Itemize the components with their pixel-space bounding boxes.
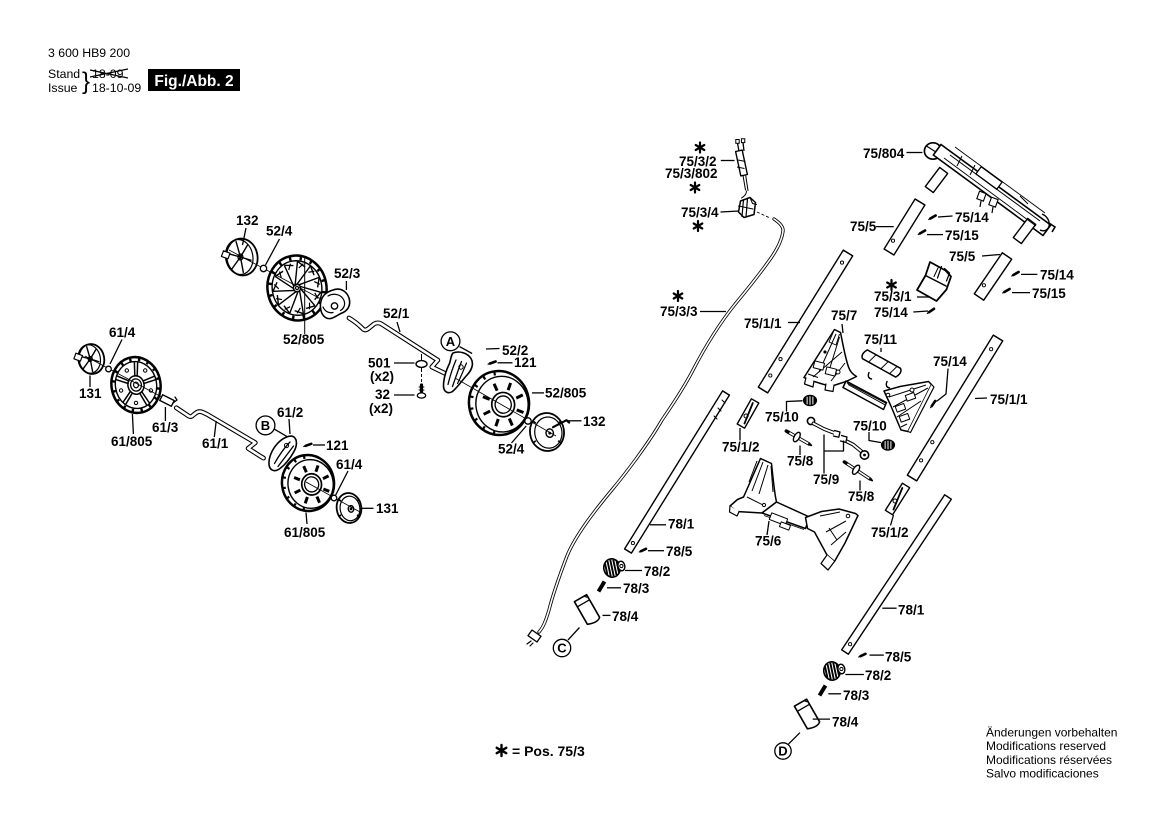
- svg-text:3 600 HB9 200: 3 600 HB9 200: [48, 46, 130, 60]
- svg-text:75/3/802: 75/3/802: [665, 166, 718, 181]
- svg-text:Änderungen vorbehalten: Änderungen vorbehalten: [986, 726, 1117, 740]
- svg-text:75/9: 75/9: [813, 472, 839, 487]
- svg-text:75/10: 75/10: [765, 410, 799, 425]
- svg-text:132: 132: [236, 213, 259, 228]
- svg-text:61/3: 61/3: [152, 420, 179, 435]
- svg-text:75/15: 75/15: [1032, 286, 1066, 301]
- svg-text:75/11: 75/11: [864, 332, 898, 347]
- svg-text:75/14: 75/14: [955, 210, 989, 225]
- svg-text:75/1/2: 75/1/2: [722, 440, 760, 455]
- svg-text:78/5: 78/5: [885, 650, 912, 665]
- svg-text:B: B: [261, 418, 270, 433]
- svg-text:(x2): (x2): [369, 401, 393, 416]
- svg-text:52/4: 52/4: [498, 442, 525, 457]
- svg-text:121: 121: [326, 438, 349, 453]
- svg-text:Modifications réservées: Modifications réservées: [986, 753, 1112, 767]
- svg-text:75/7: 75/7: [831, 308, 857, 323]
- svg-text:52/4: 52/4: [266, 224, 293, 239]
- svg-text:61/1: 61/1: [202, 436, 229, 451]
- svg-text:Salvo modificaciones: Salvo modificaciones: [986, 767, 1099, 781]
- svg-text:78/3: 78/3: [623, 581, 650, 596]
- svg-text:61/805: 61/805: [111, 434, 153, 449]
- svg-text:131: 131: [79, 386, 102, 401]
- svg-text:Modifications reserved: Modifications reserved: [986, 739, 1106, 753]
- svg-text:75/5: 75/5: [949, 249, 976, 264]
- svg-text:75/1/2: 75/1/2: [871, 525, 909, 540]
- svg-text:C: C: [557, 641, 567, 656]
- svg-text:Stand: Stand: [48, 67, 80, 81]
- svg-text:78/2: 78/2: [644, 564, 670, 579]
- svg-text:78/4: 78/4: [832, 715, 859, 730]
- svg-text:78/1: 78/1: [898, 603, 925, 618]
- svg-text:75/6: 75/6: [755, 534, 782, 549]
- svg-text:132: 132: [583, 414, 606, 429]
- svg-text:75/8: 75/8: [787, 454, 814, 469]
- svg-text:A: A: [446, 334, 456, 349]
- svg-text:78/1: 78/1: [668, 517, 695, 532]
- svg-text:75/1/1: 75/1/1: [990, 392, 1028, 407]
- svg-text:75/1/1: 75/1/1: [744, 316, 782, 331]
- svg-text:52/805: 52/805: [545, 386, 587, 401]
- svg-text:78/2: 78/2: [865, 668, 891, 683]
- svg-text:}: }: [82, 68, 90, 95]
- svg-text:18-10-09: 18-10-09: [92, 81, 141, 95]
- svg-text:(x2): (x2): [370, 369, 394, 384]
- svg-text:32: 32: [375, 387, 390, 402]
- svg-text:75/5: 75/5: [850, 219, 877, 234]
- svg-text:75/14: 75/14: [933, 354, 967, 369]
- svg-text:61/4: 61/4: [336, 457, 363, 472]
- svg-text:75/8: 75/8: [848, 489, 875, 504]
- svg-text:75/10: 75/10: [853, 419, 887, 434]
- svg-text:78/3: 78/3: [843, 688, 870, 703]
- svg-text:Fig./Abb. 2: Fig./Abb. 2: [154, 73, 233, 90]
- svg-text:75/3/1: 75/3/1: [874, 289, 912, 304]
- svg-text:75/14: 75/14: [874, 305, 908, 320]
- svg-text:75/14: 75/14: [1040, 268, 1074, 283]
- svg-text:= Pos. 75/3: = Pos. 75/3: [512, 743, 585, 759]
- svg-text:52/805: 52/805: [283, 332, 325, 347]
- svg-text:D: D: [778, 744, 787, 759]
- svg-text:131: 131: [376, 501, 399, 516]
- svg-text:75/15: 75/15: [945, 228, 979, 243]
- svg-text:52/3: 52/3: [334, 266, 361, 281]
- svg-text:75/804: 75/804: [863, 146, 905, 161]
- svg-text:78/4: 78/4: [612, 609, 639, 624]
- svg-text:78/5: 78/5: [666, 544, 693, 559]
- svg-text:Issue: Issue: [48, 81, 78, 95]
- svg-text:52/1: 52/1: [383, 306, 410, 321]
- svg-text:61/4: 61/4: [109, 325, 136, 340]
- svg-text:75/3/3: 75/3/3: [660, 304, 698, 319]
- svg-text:75/3/4: 75/3/4: [681, 205, 719, 220]
- svg-text:61/2: 61/2: [277, 405, 303, 420]
- svg-text:121: 121: [514, 355, 537, 370]
- svg-text:61/805: 61/805: [284, 525, 326, 540]
